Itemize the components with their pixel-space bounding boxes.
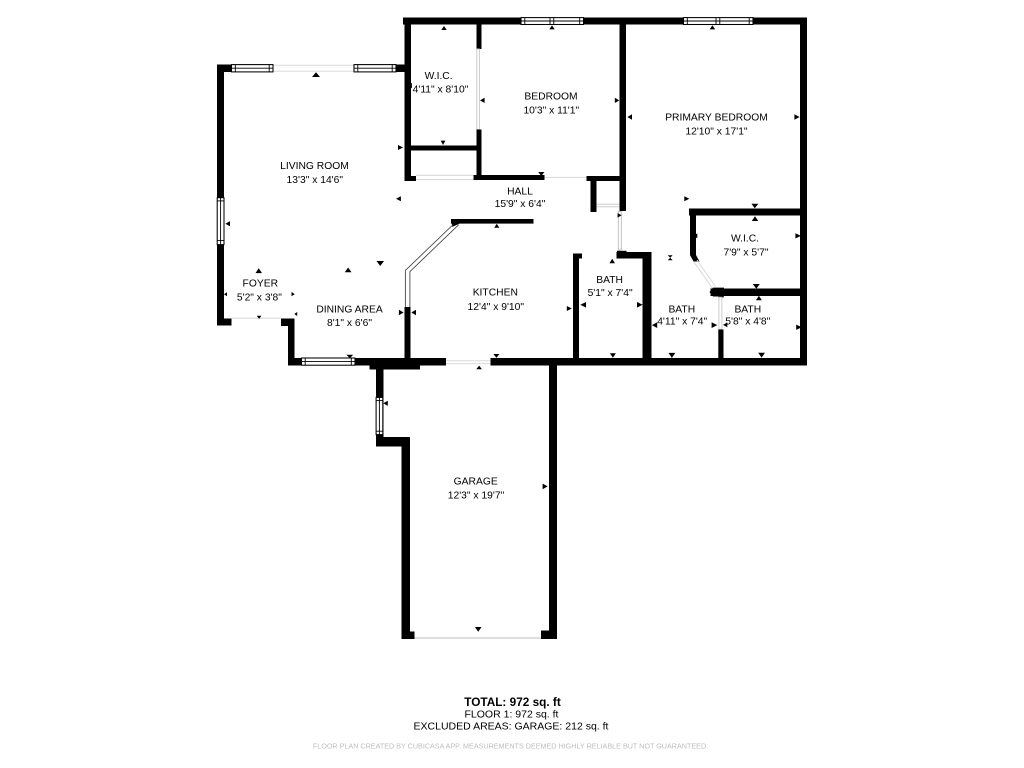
svg-text:5'2" x 3'8": 5'2" x 3'8": [237, 293, 282, 304]
svg-text:KITCHEN: KITCHEN: [473, 288, 518, 299]
svg-text:LIVING ROOM: LIVING ROOM: [280, 161, 349, 172]
svg-text:12'4" x 9'10": 12'4" x 9'10": [468, 302, 525, 313]
svg-text:8'1" x 6'6": 8'1" x 6'6": [327, 318, 372, 329]
svg-text:4'11" x 7'4": 4'11" x 7'4": [657, 316, 707, 327]
svg-text:12'3" x 19'7": 12'3" x 19'7": [448, 491, 505, 502]
svg-text:15'9" x 6'4": 15'9" x 6'4": [495, 199, 546, 210]
svg-text:5'8" x 4'8": 5'8" x 4'8": [725, 316, 770, 327]
svg-text:W.I.C.: W.I.C.: [731, 234, 759, 245]
svg-text:12'10" x 17'1": 12'10" x 17'1": [685, 127, 748, 138]
svg-text:W.I.C.: W.I.C.: [425, 71, 453, 82]
svg-text:BEDROOM: BEDROOM: [524, 92, 577, 103]
svg-text:BATH: BATH: [596, 275, 623, 286]
svg-text:FLOOR PLAN CREATED BY CUBICASA: FLOOR PLAN CREATED BY CUBICASA APP. MEAS…: [313, 741, 708, 750]
svg-text:EXCLUDED AREAS: GARAGE: 212 sq: EXCLUDED AREAS: GARAGE: 212 sq. ft: [414, 720, 609, 732]
svg-text:7'9" x 5'7": 7'9" x 5'7": [723, 247, 768, 258]
svg-text:BATH: BATH: [734, 304, 761, 315]
svg-text:PRIMARY BEDROOM: PRIMARY BEDROOM: [665, 113, 768, 124]
svg-text:5'1" x 7'4": 5'1" x 7'4": [588, 288, 633, 299]
svg-text:10'3" x 11'1": 10'3" x 11'1": [523, 106, 579, 117]
svg-text:DINING AREA: DINING AREA: [316, 305, 383, 316]
svg-text:BATH: BATH: [668, 304, 695, 315]
svg-text:TOTAL: 972 sq. ft: TOTAL: 972 sq. ft: [464, 695, 561, 709]
svg-text:GARAGE: GARAGE: [454, 476, 498, 487]
svg-text:FLOOR 1: 972 sq. ft: FLOOR 1: 972 sq. ft: [465, 709, 559, 721]
svg-text:4'11" x 8'10": 4'11" x 8'10": [413, 84, 469, 95]
svg-text:HALL: HALL: [507, 187, 533, 198]
svg-text:13'3" x 14'6": 13'3" x 14'6": [287, 175, 344, 186]
svg-text:FOYER: FOYER: [243, 278, 278, 289]
